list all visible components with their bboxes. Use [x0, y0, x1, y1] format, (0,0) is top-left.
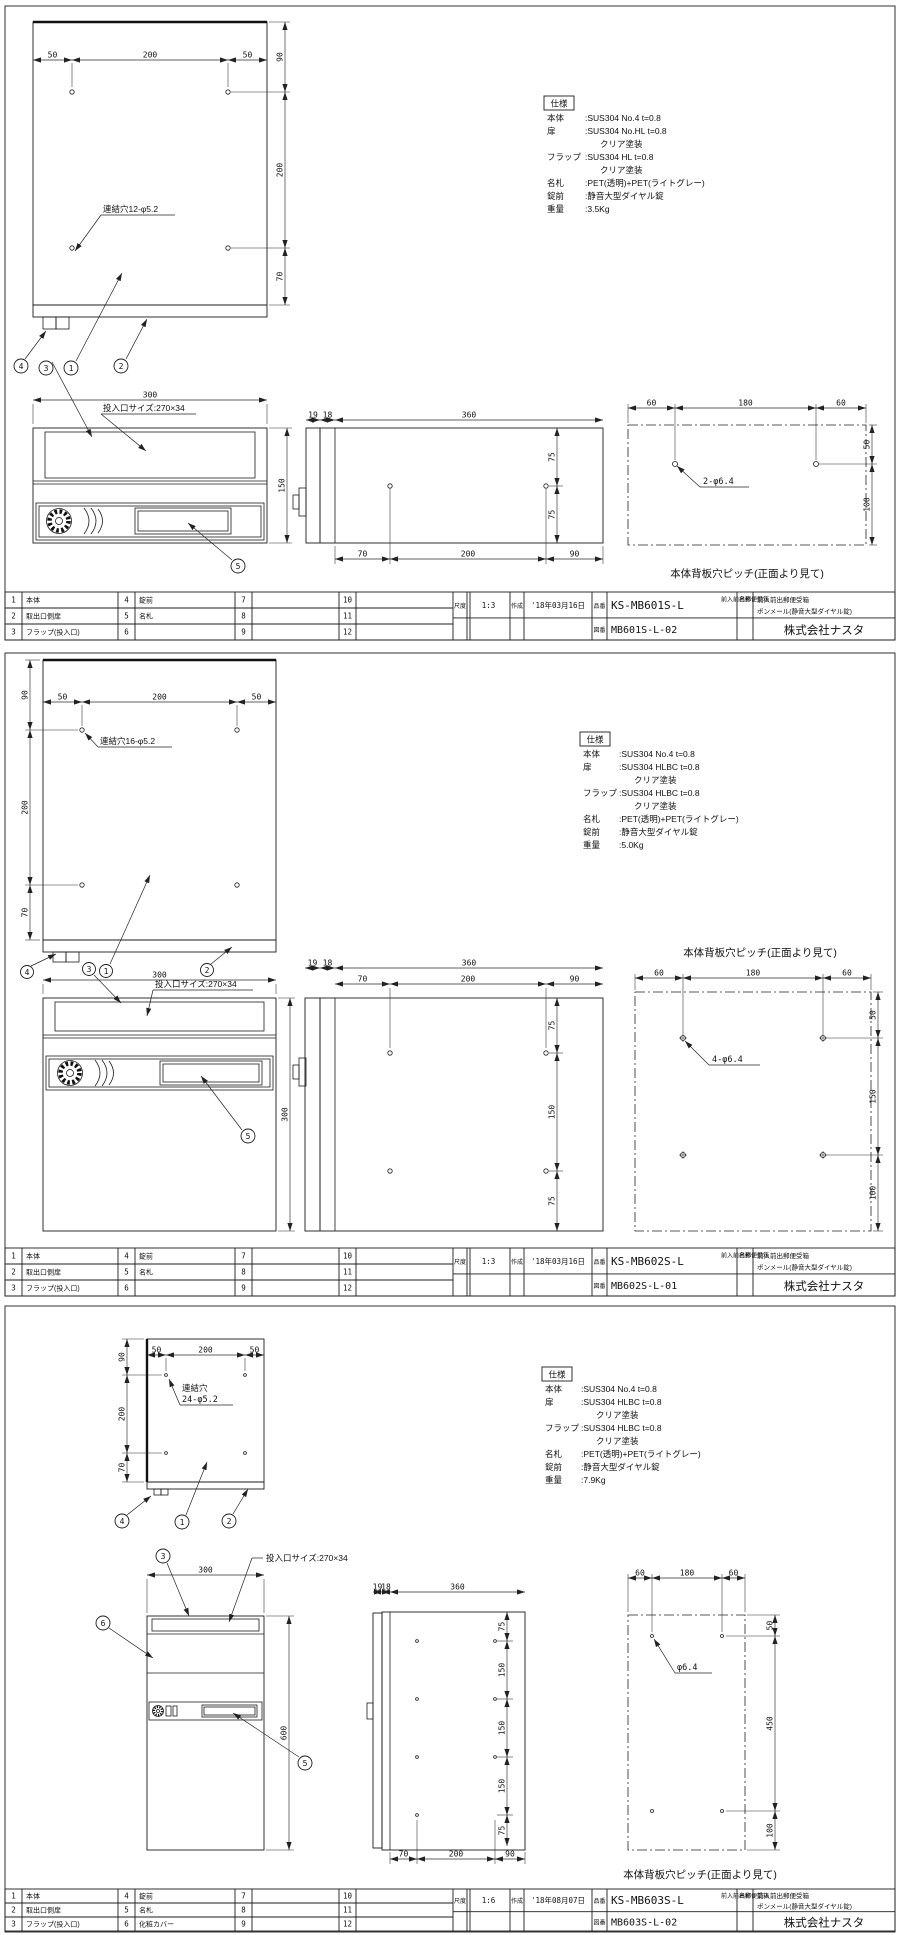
dim-label: 90 — [570, 975, 580, 984]
part-number: 3 — [11, 1284, 16, 1293]
product-name-2: ポンメール(静音大型ダイヤル錠) — [757, 1901, 852, 1910]
back-hole — [814, 462, 819, 467]
back-hole — [721, 1635, 724, 1638]
dwg-label: 図番 — [593, 1920, 605, 1927]
cad-drawing-canvas: 50200509020070連結穴12-φ5.24312300150投入口サイズ… — [0, 0, 900, 1935]
back-caption: 本体背板穴ピッチ(正面より見て) — [683, 946, 837, 959]
back-panel — [628, 425, 866, 545]
dim-label: 200 — [118, 1407, 127, 1422]
dim-label: 300 — [143, 391, 158, 400]
spec-value: :SUS304 HLBC t=0.8 — [619, 788, 700, 798]
part-number: 10 — [343, 596, 353, 605]
leader-line — [126, 319, 147, 359]
screw-hole — [494, 1698, 497, 1701]
dim-label: 75 — [548, 510, 557, 520]
company-name: 株式会社ナスタ — [784, 623, 865, 637]
dim-label: 180 — [680, 1569, 695, 1578]
part-name: 本体 — [26, 596, 40, 605]
dim-label: 90 — [21, 690, 30, 700]
made-label: 作成 — [511, 1897, 523, 1905]
part-number: 2 — [11, 1906, 16, 1915]
dim-label: 200 — [143, 51, 158, 60]
part-name: 名札 — [139, 1268, 153, 1277]
dial-teeth — [50, 512, 69, 531]
link-hole — [226, 246, 230, 250]
link-hole — [165, 1452, 168, 1455]
name-label: 名称 — [739, 1252, 751, 1260]
dial-teeth — [154, 1707, 162, 1715]
part-number: 10 — [343, 1252, 353, 1261]
part-name: 取出口側扉 — [26, 1906, 61, 1915]
dim-label: 50 — [869, 1010, 878, 1020]
screw-hole — [416, 1756, 419, 1759]
spec-value: :5.0Kg — [619, 840, 644, 850]
leader-line — [109, 1628, 153, 1658]
slot-size-label: 投入口サイズ:270×34 — [266, 1553, 348, 1563]
dim-label: 50 — [152, 1346, 162, 1355]
spec-value: :静音大型ダイヤル錠 — [619, 827, 698, 837]
dim-label: 70 — [399, 1850, 409, 1859]
knob — [367, 1703, 373, 1719]
spec-value: :SUS304 No.HL t=0.8 — [585, 126, 667, 136]
dim-label: 50 — [252, 693, 262, 702]
callout-number: 4 — [19, 362, 24, 371]
spec-value: :静音大型ダイヤル錠 — [581, 1462, 660, 1472]
leader-line — [654, 1639, 675, 1673]
back-caption: 本体背板穴ピッチ(正面より見て) — [670, 567, 824, 580]
callout-number: 5 — [236, 562, 241, 571]
link-hole — [70, 90, 74, 94]
dim-label: 150 — [498, 1663, 507, 1678]
spec-value: クリア塗装 — [600, 165, 643, 175]
dim-label: 200 — [461, 550, 476, 559]
name-plate — [160, 1061, 262, 1085]
outline — [33, 428, 267, 543]
product-name-2: ポンメール(静音大型ダイヤル錠) — [757, 607, 852, 616]
screw-hole — [544, 1169, 548, 1173]
door-edge — [305, 998, 320, 1231]
part-name: 本体 — [26, 1892, 40, 1901]
dial-teeth — [61, 1064, 80, 1083]
link-hole-label: 連結穴12-φ5.2 — [103, 204, 158, 214]
dim-label: 200 — [21, 800, 30, 815]
screw-hole — [544, 484, 548, 488]
dim-label: 19 — [308, 959, 318, 968]
back-hole — [651, 1635, 654, 1638]
leader-line — [233, 1489, 248, 1514]
product-name-1: 前入前出郵便受箱 — [757, 1251, 810, 1260]
leader-line — [127, 1496, 151, 1515]
latch — [53, 952, 66, 962]
spec-title: 仕様 — [548, 1370, 566, 1380]
part-name: 化粧カバー — [139, 1920, 174, 1929]
back-panel — [628, 1615, 745, 1850]
screw-hole — [388, 1169, 392, 1173]
dim-label: 360 — [462, 959, 477, 968]
part-number: 7 — [241, 1252, 246, 1261]
dim-label: 60 — [729, 1569, 739, 1578]
outline — [147, 1616, 264, 1850]
flap-panel — [45, 432, 255, 478]
spec-title: 仕様 — [586, 735, 604, 745]
latch — [66, 952, 79, 962]
spec-label: 名札 — [583, 814, 601, 824]
scale-value: 1:6 — [482, 1896, 496, 1905]
part-number: 12 — [343, 1920, 352, 1929]
dim-label: 200 — [461, 975, 476, 984]
leader-line — [31, 954, 56, 966]
dim-label: 300 — [198, 1566, 213, 1575]
screw-hole — [388, 1051, 392, 1055]
leader-line — [167, 1563, 189, 1616]
dim-label: 75 — [498, 1622, 507, 1632]
callout-number: 1 — [180, 1518, 185, 1527]
code-label: 品番 — [593, 1259, 605, 1266]
part-number: 8 — [241, 612, 246, 621]
leader-line — [25, 331, 46, 359]
dim-label: 300 — [281, 1107, 290, 1122]
part-number: 1 — [11, 596, 16, 605]
door-edge — [306, 428, 320, 543]
scale-value: 1:3 — [482, 1257, 496, 1266]
dim-label: 200 — [276, 163, 285, 178]
scale-label: 尺度 — [454, 602, 466, 610]
dim-label: 70 — [21, 908, 30, 918]
screw-hole — [416, 1698, 419, 1701]
spec-label: 本体 — [583, 749, 601, 759]
drawing-number: MB603S-L-02 — [611, 1918, 677, 1929]
spec-label: 本体 — [545, 1384, 563, 1394]
back-panel — [635, 992, 871, 1231]
spec-value: クリア塗装 — [600, 139, 643, 149]
spec-label: 扉 — [583, 762, 592, 772]
spec-value: :3.5Kg — [585, 204, 610, 214]
spec-value: :PET(透明)+PET(ライトグレー) — [585, 178, 705, 188]
part-number: 2 — [11, 1268, 16, 1277]
spec-value: :PET(透明)+PET(ライトグレー) — [619, 814, 739, 824]
part-name: 取出口側扉 — [26, 1268, 61, 1277]
name-plate — [135, 508, 231, 534]
spec-value: クリア塗装 — [596, 1410, 639, 1420]
spec-value: :SUS304 No.4 t=0.8 — [619, 749, 695, 759]
handle-icon — [166, 1706, 171, 1716]
dim-label: 600 — [280, 1726, 289, 1741]
leader-line — [201, 1076, 242, 1130]
dim-label: 18 — [323, 959, 333, 968]
part-number: 2 — [11, 612, 16, 621]
code-label: 品番 — [593, 603, 605, 610]
spec-label: 名札 — [547, 178, 565, 188]
outline — [320, 428, 603, 543]
spec-value: :SUS304 HLBC t=0.8 — [581, 1423, 662, 1433]
link-hole-label: 連結穴 — [182, 1383, 208, 1393]
outline — [320, 998, 603, 1231]
outline — [204, 1707, 255, 1715]
leader-line — [211, 947, 232, 964]
part-number: 5 — [124, 1268, 129, 1277]
part-number: 9 — [241, 628, 246, 637]
product-code: KS-MB601S-L — [611, 599, 684, 612]
dim-label: 90 — [118, 1352, 127, 1362]
code-label: 品番 — [593, 1898, 605, 1905]
product-name-1: 前入前出郵便受箱 — [757, 1891, 810, 1900]
part-number: 5 — [124, 612, 129, 621]
back-hole — [673, 462, 678, 467]
outline — [147, 1482, 264, 1489]
dim-label: 360 — [462, 411, 477, 420]
part-number: 4 — [124, 1892, 129, 1901]
dim-label: 50 — [766, 1621, 775, 1631]
leader-line — [101, 414, 146, 451]
flap-panel — [55, 1002, 264, 1031]
screw-hole — [416, 1640, 419, 1643]
spec-label: 扉 — [545, 1397, 554, 1407]
latch — [43, 317, 56, 329]
dim-label: 200 — [449, 1850, 464, 1859]
door-edge — [373, 1613, 382, 1848]
part-number: 7 — [241, 1892, 246, 1901]
callout-number: 5 — [303, 1759, 308, 1768]
part-number: 8 — [241, 1268, 246, 1277]
product-code: KS-MB603S-L — [611, 1894, 684, 1907]
part-name: 取出口側扉 — [26, 612, 61, 621]
flap-panel — [152, 1619, 259, 1631]
spec-value: :SUS304 HLBC t=0.8 — [619, 762, 700, 772]
handle-icon — [173, 1706, 177, 1716]
dim-label: 70 — [358, 975, 368, 984]
latch — [56, 317, 69, 329]
dim-label: 50 — [58, 693, 68, 702]
link-hole — [70, 246, 74, 250]
spec-title: 仕様 — [550, 99, 568, 109]
callout-number: 2 — [205, 966, 210, 975]
drawing-number: MB602S-L-01 — [611, 1281, 677, 1292]
link-hole — [235, 728, 239, 732]
knob — [299, 488, 306, 516]
back-caption: 本体背板穴ピッチ(正面より見て) — [623, 1868, 777, 1881]
link-hole-label: 24-φ5.2 — [182, 1395, 218, 1405]
back-hole-label: 2-φ6.4 — [703, 477, 734, 487]
back-hole — [651, 1810, 654, 1813]
dim-label: 180 — [738, 399, 753, 408]
back-hole — [721, 1810, 724, 1813]
part-name: 錠前 — [139, 1892, 153, 1901]
spec-label: 重量 — [547, 204, 565, 214]
part-name: フラップ(投入口) — [26, 1920, 80, 1929]
spec-label: 重量 — [545, 1475, 563, 1485]
part-number: 4 — [124, 1252, 129, 1261]
part-name: 名札 — [139, 1906, 153, 1915]
dwg-label: 図番 — [593, 627, 605, 634]
callout-number: 5 — [246, 1132, 251, 1141]
name-label: 名称 — [739, 596, 751, 604]
callout-number: 4 — [120, 1517, 125, 1526]
dim-label: 70 — [118, 1463, 127, 1473]
dwg-label: 図番 — [593, 1283, 605, 1290]
dim-label: 450 — [766, 1716, 775, 1731]
link-hole — [244, 1374, 247, 1377]
part-number: 8 — [241, 1906, 246, 1915]
spec-label: 錠前 — [545, 1462, 563, 1472]
spec-value: :SUS304 HLBC t=0.8 — [581, 1397, 662, 1407]
part-number: 9 — [241, 1920, 246, 1929]
link-hole — [165, 1374, 168, 1377]
dim-label: 100 — [869, 1186, 878, 1201]
part-number: 1 — [11, 1252, 16, 1261]
screw-hole — [544, 1051, 548, 1055]
spec-label: フラップ — [545, 1423, 580, 1433]
product-name-2: ポンメール(静音大型ダイヤル錠) — [757, 1263, 852, 1272]
screw-hole — [416, 1814, 419, 1817]
date-value: '18年03月16日 — [531, 600, 585, 610]
callout-number: 3 — [87, 965, 92, 974]
dim-label: 360 — [450, 1583, 465, 1592]
dim-label: 90 — [570, 550, 580, 559]
sheet3-frame — [5, 1306, 895, 1932]
dim-label: 75 — [548, 1196, 557, 1206]
spec-value: :7.9Kg — [581, 1475, 606, 1485]
knob — [293, 495, 299, 509]
callout-number: 3 — [161, 1552, 166, 1561]
link-hole-label: 連結穴16-φ5.2 — [100, 736, 155, 746]
dim-label: 60 — [842, 969, 852, 978]
drawing-number: MB601S-L-02 — [611, 625, 677, 636]
part-name: フラップ(投入口) — [26, 1284, 80, 1293]
spec-value: クリア塗装 — [634, 801, 677, 811]
spec-value: :静音大型ダイヤル錠 — [585, 191, 664, 201]
slot-size-label: 投入口サイズ:270×34 — [155, 979, 237, 989]
dim-label: 50 — [250, 1346, 260, 1355]
dial-center — [157, 1710, 160, 1713]
spec-label: 重量 — [583, 840, 601, 850]
spec-value: :PET(透明)+PET(ライトグレー) — [581, 1449, 701, 1459]
dim-label: 90 — [276, 52, 285, 62]
dim-label: 18 — [323, 411, 333, 420]
part-number: 4 — [124, 596, 129, 605]
leader-line — [186, 1462, 207, 1515]
dim-label: 200 — [152, 693, 167, 702]
callout-number: 2 — [227, 1517, 232, 1526]
dim-label: 100 — [863, 497, 872, 512]
outline — [138, 511, 228, 531]
back-hole-label: 4-φ6.4 — [712, 1055, 743, 1065]
dial-center — [67, 1070, 74, 1077]
dim-label: 60 — [647, 399, 657, 408]
outline — [163, 1064, 259, 1082]
date-value: '18年03月16日 — [531, 1256, 585, 1266]
outline — [43, 998, 276, 1231]
dim-label: 75 — [548, 452, 557, 462]
dim-label: 70 — [358, 550, 368, 559]
screw-hole — [494, 1640, 497, 1643]
part-number: 6 — [124, 628, 129, 637]
leader-line — [94, 975, 121, 1003]
company-name: 株式会社ナスタ — [784, 1916, 865, 1930]
outline — [43, 940, 276, 952]
link-hole — [226, 90, 230, 94]
spec-value: クリア塗装 — [596, 1436, 639, 1446]
part-name: 錠前 — [139, 1252, 153, 1261]
dim-label: 150 — [498, 1721, 507, 1736]
part-number: 11 — [343, 1268, 352, 1277]
spec-value: :SUS304 No.4 t=0.8 — [581, 1384, 657, 1394]
dim-label: 18 — [381, 1583, 391, 1592]
part-number: 1 — [11, 1892, 16, 1901]
part-number: 6 — [124, 1284, 129, 1293]
part-number: 11 — [343, 612, 352, 621]
dim-label: 50 — [243, 51, 253, 60]
callout-number: 3 — [44, 364, 49, 373]
outline — [33, 305, 267, 317]
spec-label: フラップ — [547, 152, 582, 162]
handle-icon — [84, 508, 103, 534]
made-label: 作成 — [511, 1258, 523, 1266]
dim-label: 75 — [548, 1021, 557, 1031]
back-hole-label: φ6.4 — [677, 1663, 697, 1673]
date-value: '18年08月07日 — [531, 1895, 585, 1905]
dim-label: 60 — [836, 399, 846, 408]
link-hole — [80, 728, 84, 732]
callout-number: 1 — [104, 967, 109, 976]
spec-label: 錠前 — [547, 191, 565, 201]
dim-label: 100 — [766, 1823, 775, 1838]
dim-label: 75 — [498, 1826, 507, 1836]
callout-number: 2 — [119, 362, 124, 371]
spec-label: 名札 — [545, 1449, 563, 1459]
product-name-1: 前入前出郵便受箱 — [757, 595, 810, 604]
dim-label: 50 — [863, 440, 872, 450]
part-number: 12 — [343, 628, 352, 637]
callout-number: 1 — [69, 364, 74, 373]
spec-value: クリア塗装 — [634, 775, 677, 785]
leader-line — [229, 1558, 252, 1622]
link-hole — [80, 883, 84, 887]
callout-number: 4 — [25, 968, 30, 977]
outline — [147, 1339, 264, 1482]
dim-label: 90 — [505, 1850, 515, 1859]
leader-line — [188, 523, 232, 560]
name-label: 名称 — [739, 1892, 751, 1900]
made-label: 作成 — [511, 602, 523, 610]
product-code: KS-MB602S-L — [611, 1255, 684, 1268]
dim-label: 150 — [498, 1779, 507, 1794]
part-name: 錠前 — [139, 596, 153, 605]
scale-value: 1:3 — [482, 601, 496, 610]
knob — [293, 1065, 299, 1079]
leader-line — [685, 1041, 709, 1065]
link-hole — [235, 883, 239, 887]
part-number: 7 — [241, 596, 246, 605]
spec-label: 本体 — [547, 113, 565, 123]
latch — [154, 1489, 161, 1495]
leader-line — [677, 466, 700, 487]
sheet2-frame — [5, 653, 895, 1296]
callout-number: 6 — [101, 1619, 106, 1628]
dim-label: 150 — [278, 478, 287, 493]
screw-hole — [494, 1756, 497, 1759]
dial-center — [56, 518, 63, 525]
dim-label: 60 — [635, 1569, 645, 1578]
leader-line — [147, 990, 153, 1016]
outline — [33, 22, 267, 305]
latch — [161, 1489, 168, 1495]
screw-hole — [388, 484, 392, 488]
drawing-page: 50200509020070連結穴12-φ5.24312300150投入口サイズ… — [0, 0, 900, 1935]
leader-line — [169, 1379, 180, 1405]
dim-label: 19 — [308, 411, 318, 420]
dim-label: 60 — [654, 969, 664, 978]
spec-value: :SUS304 HL t=0.8 — [585, 152, 654, 162]
